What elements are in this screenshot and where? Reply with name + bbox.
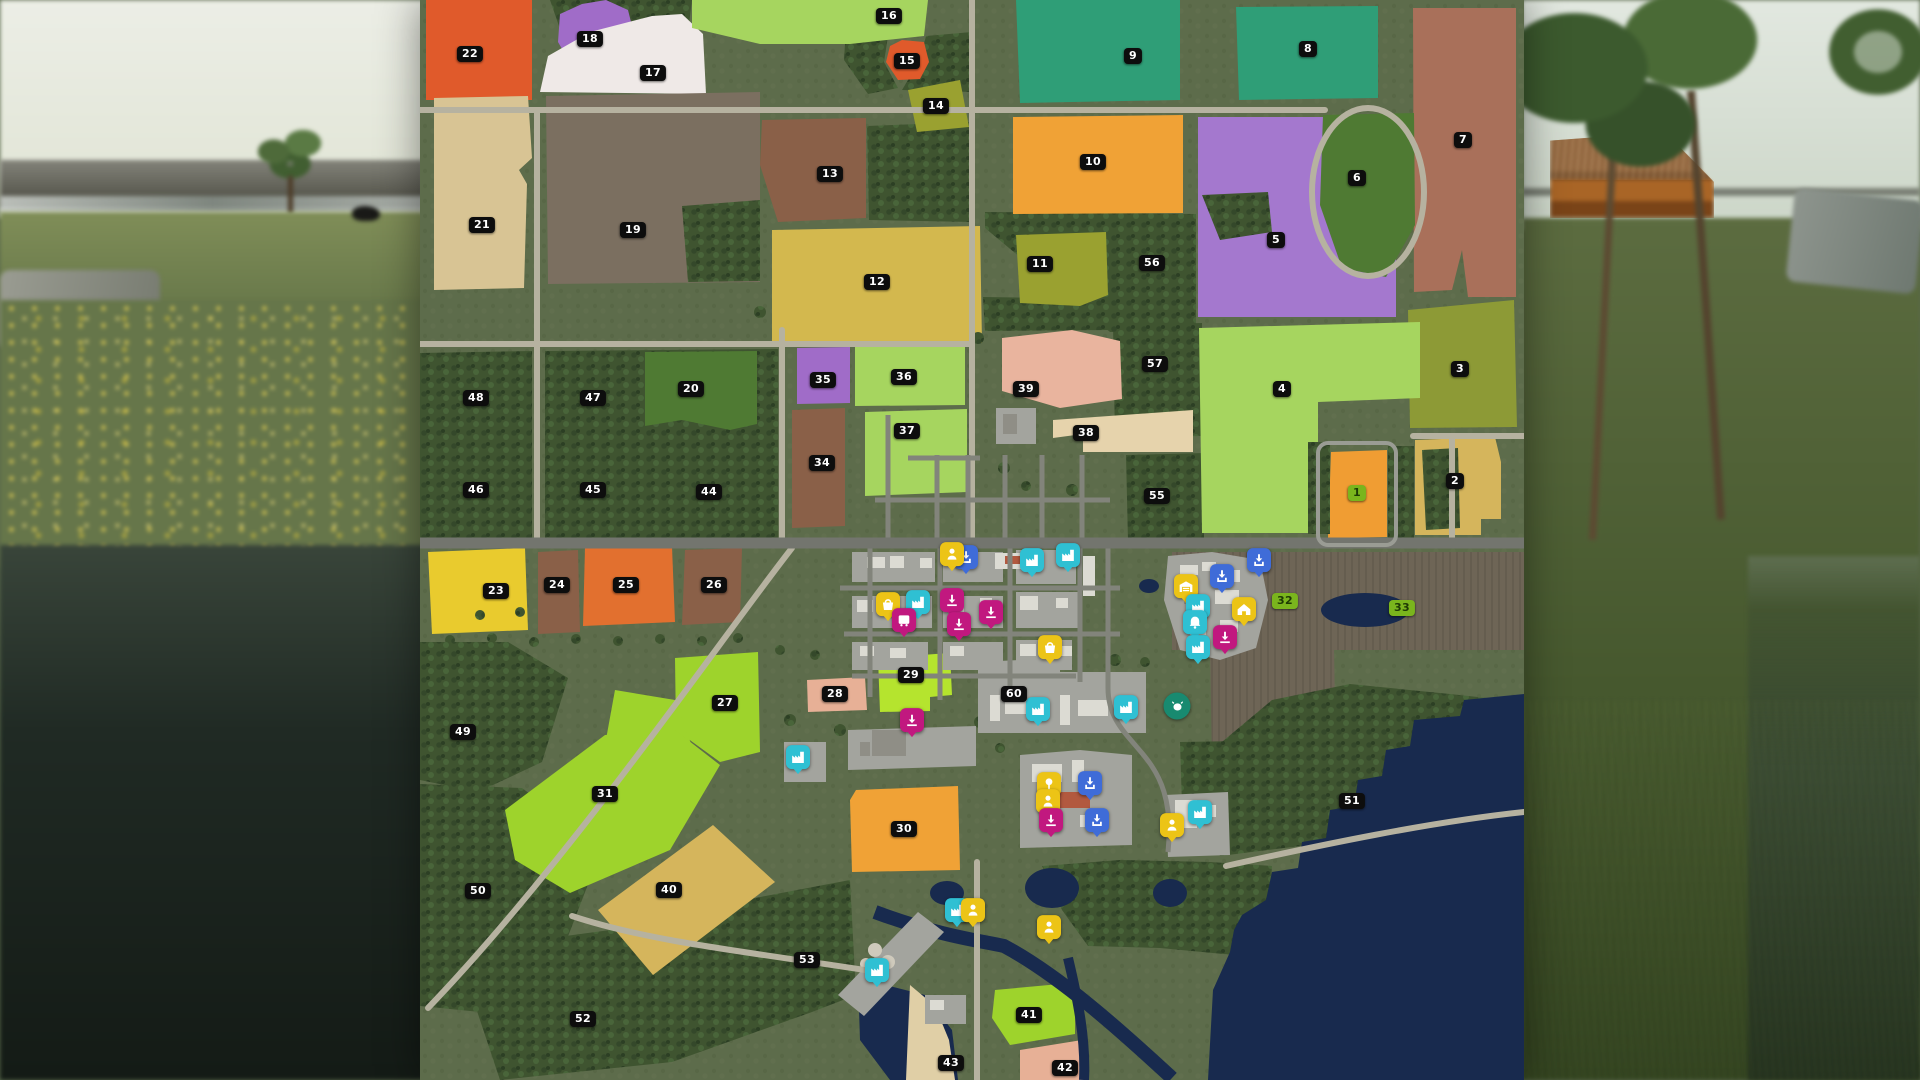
field-label-2[interactable]: 2 (1446, 473, 1464, 489)
game-screen: 1234567891011121314151617181920212223242… (0, 0, 1920, 1080)
field-label-28[interactable]: 28 (822, 686, 848, 702)
field-label-32[interactable]: 32 (1272, 593, 1298, 609)
field-label-57[interactable]: 57 (1142, 356, 1168, 372)
mission-marker[interactable] (940, 542, 964, 566)
field-label-38[interactable]: 38 (1073, 425, 1099, 441)
shop-marker[interactable] (1038, 635, 1062, 659)
unload-marker[interactable] (1078, 771, 1102, 795)
sell-marker[interactable] (900, 708, 924, 732)
field-label-26[interactable]: 26 (701, 577, 727, 593)
field-label-36[interactable]: 36 (891, 369, 917, 385)
field-label-10[interactable]: 10 (1080, 154, 1106, 170)
factory-icon (1192, 804, 1209, 821)
sell-marker[interactable] (940, 588, 964, 612)
mission-marker[interactable] (961, 898, 985, 922)
field-label-17[interactable]: 17 (640, 65, 666, 81)
production-marker[interactable] (786, 745, 810, 769)
field-label-8[interactable]: 8 (1299, 41, 1317, 57)
background-world-right (1522, 0, 1920, 1080)
farmhouse-marker[interactable] (1232, 597, 1256, 621)
field-13-area[interactable] (760, 118, 866, 222)
field-label-3[interactable]: 3 (1451, 361, 1469, 377)
field-label-24[interactable]: 24 (544, 577, 570, 593)
background-world-left (0, 0, 424, 1080)
bus-icon (896, 612, 913, 629)
bell-icon (1187, 614, 1204, 631)
field-label-50[interactable]: 50 (465, 883, 491, 899)
sell-marker[interactable] (1213, 625, 1237, 649)
field-label-12[interactable]: 12 (864, 274, 890, 290)
sell-marker[interactable] (979, 600, 1003, 624)
field-7-area[interactable] (1413, 8, 1516, 297)
arrow-box-icon (1251, 552, 1268, 569)
field-label-4[interactable]: 4 (1273, 381, 1291, 397)
field-label-45[interactable]: 45 (580, 482, 606, 498)
tree-canopy (1822, 0, 1920, 140)
factory-icon (1060, 547, 1077, 564)
field-label-5[interactable]: 5 (1267, 232, 1285, 248)
map-viewport[interactable]: 1234567891011121314151617181920212223242… (420, 0, 1524, 1080)
field-label-53[interactable]: 53 (794, 952, 820, 968)
field-9-area[interactable] (1016, 0, 1180, 103)
field-label-34[interactable]: 34 (809, 455, 835, 471)
field-label-13[interactable]: 13 (817, 166, 843, 182)
water-reflections (0, 545, 424, 1080)
field-label-6[interactable]: 6 (1348, 170, 1366, 186)
field-label-20[interactable]: 20 (678, 381, 704, 397)
unload-marker[interactable] (1247, 548, 1271, 572)
person-icon (944, 546, 961, 563)
factory-icon (1030, 701, 1047, 718)
production-marker[interactable] (1114, 695, 1138, 719)
field-23-area[interactable] (428, 548, 528, 634)
person-icon (1040, 793, 1057, 810)
field-label-18[interactable]: 18 (577, 31, 603, 47)
field-label-16[interactable]: 16 (876, 8, 902, 24)
field-label-52[interactable]: 52 (570, 1011, 596, 1027)
arrow-box-icon (1089, 812, 1106, 829)
field-label-35[interactable]: 35 (810, 372, 836, 388)
unload-marker[interactable] (1085, 808, 1109, 832)
factory-icon (1024, 552, 1041, 569)
field-label-27[interactable]: 27 (712, 695, 738, 711)
field-label-40[interactable]: 40 (656, 882, 682, 898)
field-label-25[interactable]: 25 (613, 577, 639, 593)
field-label-14[interactable]: 14 (923, 98, 949, 114)
field-label-42[interactable]: 42 (1052, 1060, 1078, 1076)
production-marker[interactable] (1020, 548, 1044, 572)
field-label-11[interactable]: 11 (1027, 256, 1053, 272)
field-label-29[interactable]: 29 (898, 667, 924, 683)
flower-meadow (0, 300, 424, 568)
field-label-33[interactable]: 33 (1389, 600, 1415, 616)
factory-icon (1190, 639, 1207, 656)
tree-trunk (288, 176, 293, 214)
field-label-39[interactable]: 39 (1013, 381, 1039, 397)
production-marker[interactable] (1056, 543, 1080, 567)
field-label-22[interactable]: 22 (457, 46, 483, 62)
arrow-tray-icon (1043, 812, 1060, 829)
house-icon (1236, 601, 1253, 618)
arrow-tray-icon (983, 604, 1000, 621)
field-label-43[interactable]: 43 (938, 1055, 964, 1071)
garage-icon (1178, 578, 1195, 595)
tree-canopy (1522, 0, 1822, 250)
sell-marker[interactable] (1039, 808, 1063, 832)
field-label-46[interactable]: 46 (463, 482, 489, 498)
field-label-9[interactable]: 9 (1124, 48, 1142, 64)
field-21-area[interactable] (434, 96, 532, 290)
person-icon (1164, 817, 1181, 834)
church-marker[interactable] (1183, 610, 1207, 634)
factory-icon (790, 749, 807, 766)
basket-icon (1042, 639, 1059, 656)
animal-dealer-marker[interactable] (1164, 693, 1191, 720)
field-label-30[interactable]: 30 (891, 821, 917, 837)
mission-marker[interactable] (1037, 915, 1061, 939)
arrow-box-icon (1082, 775, 1099, 792)
mission-marker[interactable] (1160, 813, 1184, 837)
factory-icon (869, 962, 886, 979)
field-label-48[interactable]: 48 (463, 390, 489, 406)
arrow-box-icon (1214, 568, 1231, 585)
field-label-19[interactable]: 19 (620, 222, 646, 238)
field-label-7[interactable]: 7 (1454, 132, 1472, 148)
grass-blades (1522, 700, 1920, 1080)
production-marker[interactable] (1186, 635, 1210, 659)
field-label-37[interactable]: 37 (894, 423, 920, 439)
field-label-1[interactable]: 1 (1348, 485, 1366, 501)
arrow-tray-icon (1217, 629, 1234, 646)
field-label-23[interactable]: 23 (483, 583, 509, 599)
field-label-15[interactable]: 15 (894, 53, 920, 69)
bus-stop-marker[interactable] (892, 608, 916, 632)
person-icon (1041, 919, 1058, 936)
factory-icon (1118, 699, 1135, 716)
person-icon (965, 902, 982, 919)
field-label-51[interactable]: 51 (1339, 793, 1365, 809)
field-label-47[interactable]: 47 (580, 390, 606, 406)
arrow-tray-icon (944, 592, 961, 609)
production-marker[interactable] (1026, 697, 1050, 721)
arrow-tray-icon (951, 616, 968, 633)
field-label-44[interactable]: 44 (696, 484, 722, 500)
field-label-31[interactable]: 31 (592, 786, 618, 802)
arrow-tray-icon (904, 712, 921, 729)
production-marker[interactable] (1188, 800, 1212, 824)
field-label-41[interactable]: 41 (1016, 1007, 1042, 1023)
sell-marker[interactable] (947, 612, 971, 636)
unload-marker[interactable] (1210, 564, 1234, 588)
field-label-60[interactable]: 60 (1001, 686, 1027, 702)
cow-silhouette (352, 206, 380, 221)
cow-icon (1169, 698, 1186, 715)
production-marker[interactable] (865, 958, 889, 982)
field-label-56[interactable]: 56 (1139, 255, 1165, 271)
field-label-55[interactable]: 55 (1144, 488, 1170, 504)
field-label-49[interactable]: 49 (450, 724, 476, 740)
field-label-21[interactable]: 21 (469, 217, 495, 233)
